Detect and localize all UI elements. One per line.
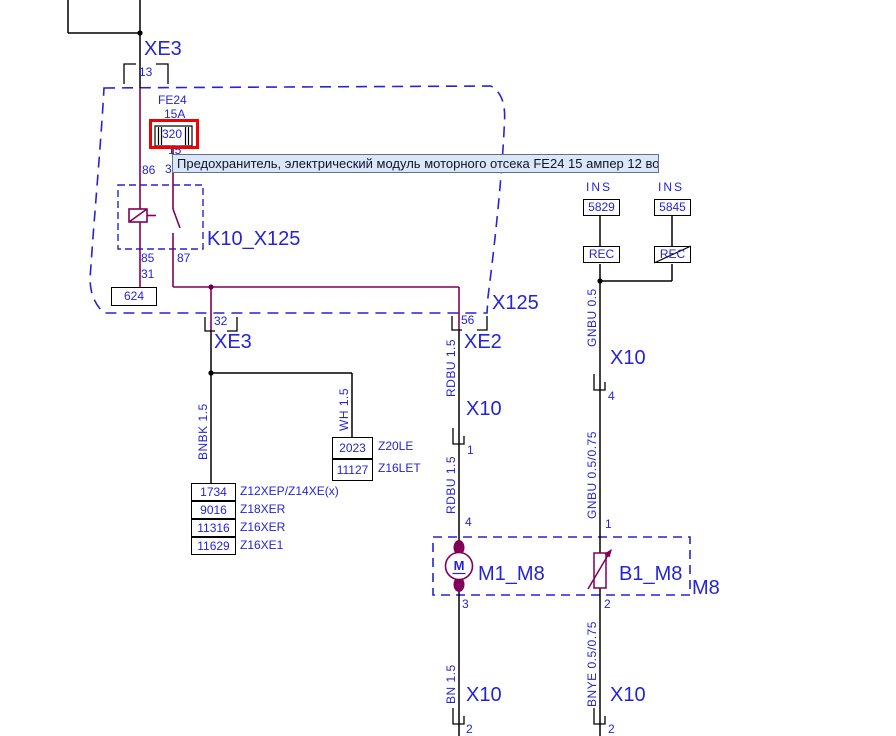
relay-label-k10[interactable]: K10_X125 [207, 229, 300, 250]
wire-label-wh: WH 1.5 [338, 388, 351, 431]
engine-label-z18xer: Z18XER [240, 503, 285, 516]
pin-label-87: 87 [177, 252, 190, 265]
pin-label-bottom-right: 2 [608, 723, 615, 736]
rec-box-left[interactable]: REC [583, 246, 620, 263]
connector-label-xe2: XE2 [464, 332, 502, 353]
relay-outline[interactable] [118, 185, 203, 249]
wiring-diagram-canvas: M 624 5829 5845 REC REC 2023 11127 1734 … [0, 0, 896, 736]
pin-label-sensor-2: 2 [604, 598, 611, 611]
pin-label-13: 13 [139, 66, 152, 79]
pin-label-motor-3: 3 [462, 598, 469, 611]
module-label-x125: X125 [492, 293, 539, 314]
pin-label-85: 85 [141, 252, 154, 265]
track-box-624[interactable]: 624 [111, 287, 157, 306]
track-box-2023[interactable]: 2023 [332, 437, 373, 459]
track-box-11316[interactable]: 11316 [191, 519, 236, 537]
fuse-id-label: FE24 [158, 94, 187, 107]
track-box-1734[interactable]: 1734 [191, 483, 236, 501]
track-box-11127[interactable]: 11127 [332, 459, 373, 481]
junction-dots [137, 30, 602, 375]
engine-label-z20le: Z20LE [378, 440, 413, 453]
track-box-5829[interactable]: 5829 [583, 199, 620, 216]
wire-label-rdbu-lower: RDBU 1.5 [445, 456, 458, 514]
pin-label-56: 56 [461, 314, 474, 327]
junction-dot [208, 284, 213, 289]
track-box-11629[interactable]: 11629 [191, 537, 236, 555]
connector-label-x10-bottom-left: X10 [466, 685, 502, 706]
pin-label-31: 31 [141, 268, 154, 281]
rec-box-right[interactable]: REC [654, 246, 691, 263]
junction-dot [597, 278, 602, 283]
assembly-label-m8: M8 [692, 578, 720, 599]
resistor-body [594, 553, 606, 588]
pin-label-bottom-left: 2 [466, 723, 473, 736]
component-label-m1-m8[interactable]: M1_M8 [478, 564, 545, 585]
component-label-b1-m8[interactable]: B1_M8 [619, 564, 682, 585]
engine-label-z16xer: Z16XER [240, 521, 285, 534]
wire-label-bnbk: BNBK 1.5 [197, 403, 210, 460]
track-box-5845[interactable]: 5845 [654, 199, 691, 216]
selection-highlight [149, 119, 199, 149]
connector-label-x10-bottom-right: X10 [610, 685, 646, 706]
engine-label-z16let: Z16LET [378, 462, 421, 475]
ins-caption-right: INS [658, 181, 684, 194]
wire-label-bn: BN 1.5 [445, 664, 458, 704]
relay-contact-blade [173, 209, 180, 228]
pin-label-x10-4: 4 [608, 390, 615, 403]
connector-label-xe3-top: XE3 [144, 39, 182, 60]
wire-label-gnbu-lower: GNBU 0.5/0.75 [586, 431, 599, 519]
pin-label-32: 32 [214, 315, 227, 328]
track-box-9016[interactable]: 9016 [191, 501, 236, 519]
junction-dot [208, 370, 213, 375]
pin-label-x10-1: 1 [467, 444, 474, 457]
external-wires [68, 0, 672, 736]
pin-label-86: 86 [142, 164, 155, 177]
motor-symbol[interactable]: M [446, 540, 473, 592]
wire-label-gnbu-upper: GNBU 0.5 [586, 288, 599, 347]
pin56-bracket-right [477, 316, 487, 330]
connector-label-xe3: XE3 [214, 332, 252, 353]
engine-label-z16xe1: Z16XE1 [240, 539, 283, 552]
pin13-bracket-right [156, 64, 168, 84]
pin32-bracket-right [227, 317, 237, 331]
relay-coil-diagonal [129, 209, 147, 222]
connector-label-x10-mid: X10 [466, 399, 502, 420]
pin13-bracket-left [124, 64, 136, 84]
pin-label-sensor-1: 1 [605, 518, 612, 531]
junction-dot [137, 30, 142, 35]
motor-letter: M [454, 558, 465, 573]
fuse-tooltip: Предохранитель, электрический модуль мот… [172, 154, 659, 173]
sensor-symbol[interactable] [588, 549, 612, 589]
pin-label-motor-4: 4 [465, 516, 472, 529]
engine-label-z12xep: Z12XEP/Z14XE(x) [240, 485, 339, 498]
ins-caption-left: INS [586, 181, 612, 194]
wire-label-rdbu-upper: RDBU 1.5 [445, 339, 458, 397]
wire-label-bnye: BNYE 0.5/0.75 [586, 621, 599, 707]
connector-label-x10-right: X10 [610, 348, 646, 369]
